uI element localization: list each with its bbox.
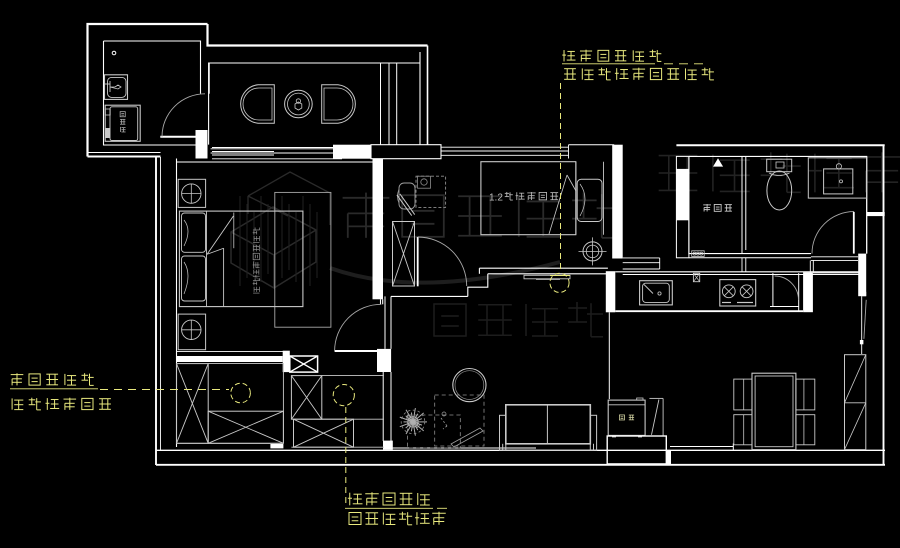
svg-text:1.2: 1.2 — [489, 193, 503, 204]
